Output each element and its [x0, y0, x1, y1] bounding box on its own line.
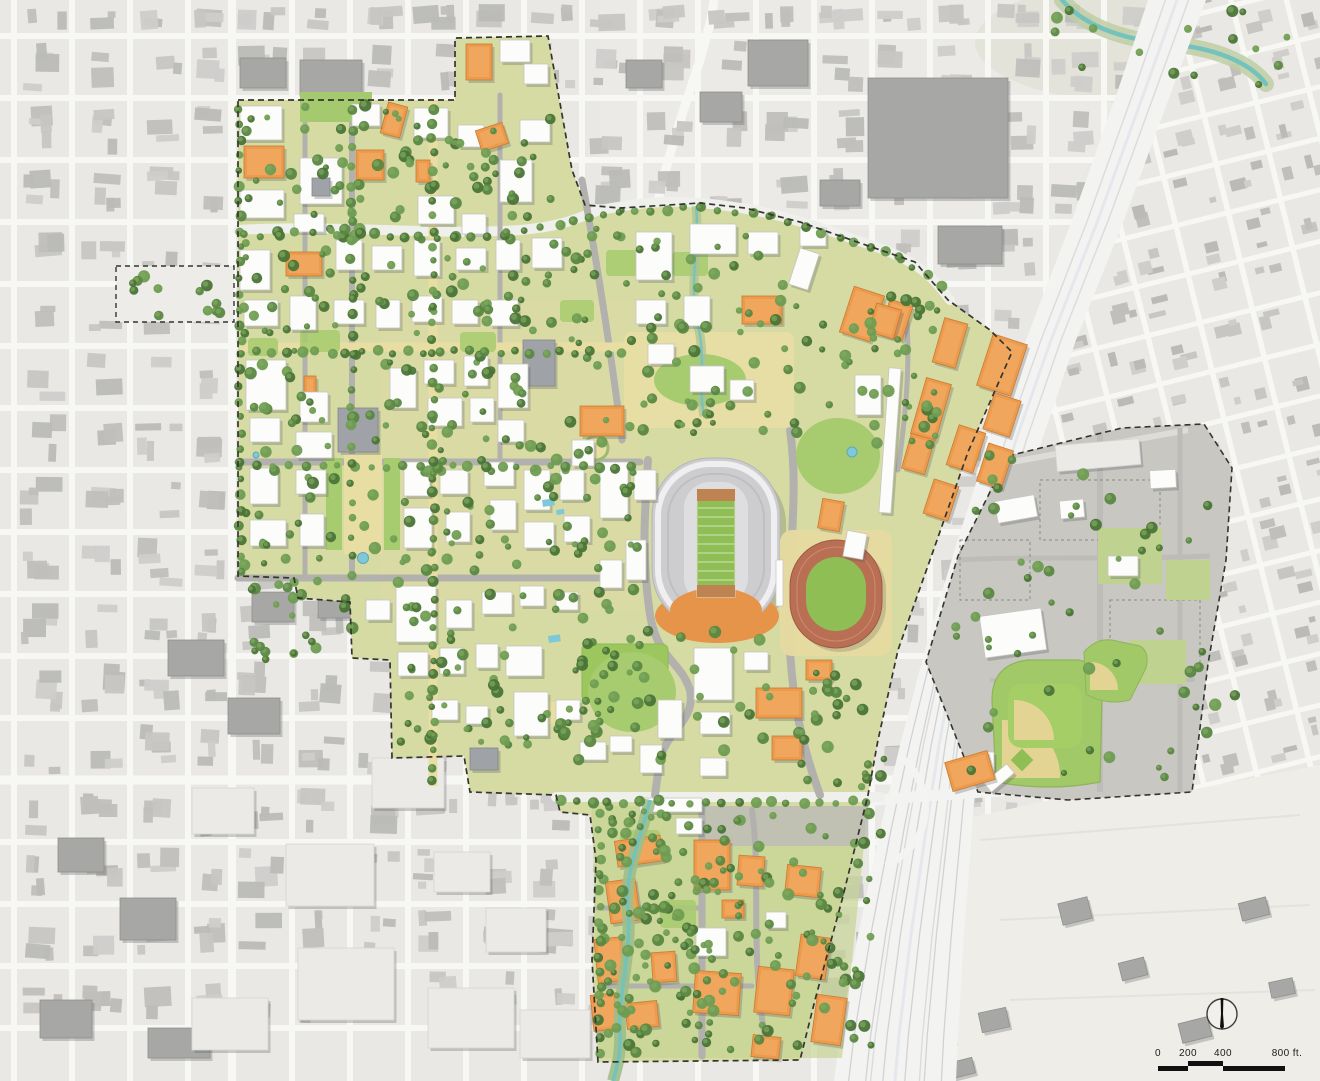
scale-tick-200: 200 — [1179, 1048, 1197, 1059]
scale-tick-0: 0 — [1155, 1048, 1161, 1059]
campus-master-plan-map: 0 200 400 800 ft. — [0, 0, 1320, 1081]
compass-icon — [1207, 998, 1237, 1029]
football-stadium — [652, 458, 786, 643]
scale-tick-800: 800 ft. — [1272, 1048, 1303, 1059]
campus-master-plan-page: 0 200 400 800 ft. — [0, 0, 1320, 1081]
scale-tick-400: 400 — [1214, 1048, 1232, 1059]
running-track-stadium — [776, 530, 892, 656]
baseball-field — [982, 660, 1102, 795]
